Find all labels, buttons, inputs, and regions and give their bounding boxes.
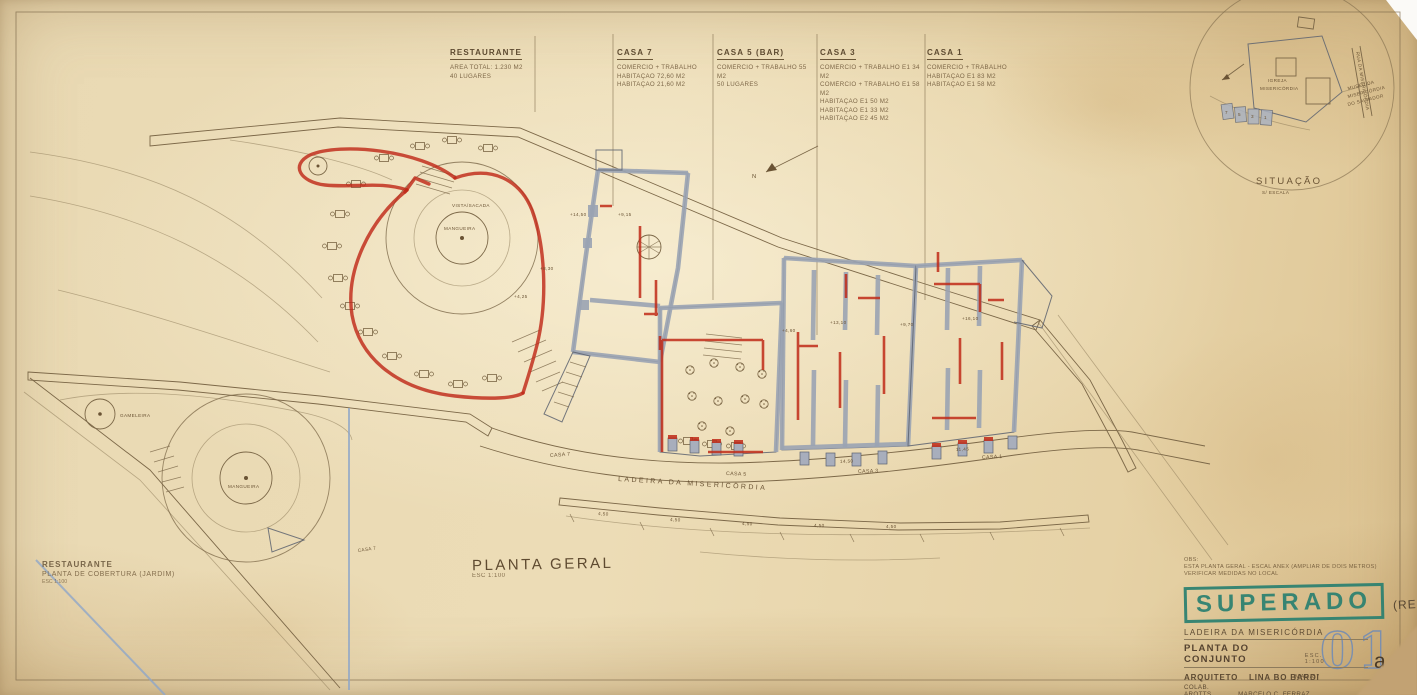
plan-small-labels: VISTA/SACADA MANGUEIRA LADEIRA DA MISERI… [444, 203, 1003, 529]
svg-text:MANGUEIRA: MANGUEIRA [444, 226, 476, 231]
street-lines [480, 315, 1228, 560]
svg-text:CASA 7: CASA 7 [550, 452, 571, 459]
casa-3 [782, 258, 916, 450]
svg-text:GAMELEIRA: GAMELEIRA [120, 413, 151, 418]
garden-plan: GAMELEIRA MANGUEIRA CASA 7 [24, 378, 376, 695]
svg-text:5: 5 [1238, 112, 1241, 117]
obs-note: OBS: ESTA PLANTA GERAL - ESCAL ANEX (AMP… [1184, 557, 1390, 578]
svg-text:IGREJA: IGREJA [1268, 78, 1288, 83]
annotation-casa-3: CASA 3 COMÉRCIO + TRABALHO E1 34 M2 COMÉ… [820, 42, 920, 124]
svg-text:1: 1 [1264, 115, 1267, 120]
annotation-casa-1: CASA 1 COMÉRCIO + TRABALHO HABITAÇÃO E1 … [927, 42, 1027, 90]
sheet-title-row: PLANTA DO CONJUNTO ESC. 1:100 [1184, 640, 1368, 668]
plan-title-block: PLANTA GERAL ESC 1:100 [472, 556, 613, 579]
terrain-contours [30, 140, 392, 372]
annotation-restaurante: RESTAURANTE AREA TOTAL: 1.230 M2 40 LUGA… [450, 42, 550, 81]
svg-text:+13,10: +13,10 [830, 320, 847, 325]
sheet-date: MAR/87 [1295, 674, 1320, 680]
svg-text:4,50: 4,50 [742, 521, 753, 526]
svg-text:+4,60: +4,60 [782, 328, 796, 333]
sheet-title: PLANTA DO CONJUNTO [1184, 643, 1305, 665]
svg-text:CASA 3: CASA 3 [858, 468, 879, 475]
svg-text:+8,30: +8,30 [540, 266, 554, 271]
casa-7 [544, 150, 688, 422]
restaurant-terrace [309, 137, 563, 392]
svg-text:+4,25: +4,25 [514, 294, 528, 299]
situacao-title: SITUAÇÃO [1256, 176, 1322, 187]
svg-text:VISTA/SACADA: VISTA/SACADA [452, 203, 490, 208]
svg-text:4,50: 4,50 [670, 517, 681, 523]
svg-text:CASA 1: CASA 1 [982, 454, 1003, 461]
svg-text:+9,70: +9,70 [900, 322, 914, 327]
svg-text:11,45: 11,45 [956, 447, 969, 452]
svg-text:S/ ESCALA: S/ ESCALA [1262, 190, 1290, 195]
annotation-casa-5: CASA 5 (BAR) COMÉRCIO + TRABALHO 55 M2 5… [717, 42, 817, 90]
red-markup-terrace [299, 149, 543, 398]
architect-row: ARQUITETO LINA BO BARDI MAR/87 [1184, 673, 1368, 682]
project-name: LADEIRA DA MISERICÓRDIA [1184, 626, 1368, 640]
svg-text:CASA 7: CASA 7 [357, 545, 376, 553]
sheet-scale: ESC. 1:100 [1305, 653, 1342, 665]
annotation-casa-7: CASA 7 COMÉRCIO + TRABALHO HABITAÇÃO 72,… [617, 42, 717, 90]
svg-text:+9,15: +9,15 [618, 212, 632, 217]
plan-scale: ESC 1:100 [472, 573, 613, 579]
svg-text:CASA 5: CASA 5 [726, 471, 747, 478]
svg-text:4,50: 4,50 [598, 511, 609, 517]
garden-title-block: RESTAURANTE PLANTA DE COBERTURA (JARDIM)… [42, 560, 175, 585]
scanned-drawing-sheet: N [0, 0, 1417, 695]
folded-corner [1353, 623, 1417, 695]
stone-retaining-walls [28, 118, 1136, 530]
svg-text:7: 7 [1225, 110, 1228, 115]
plan-title: PLANTA GERAL [472, 555, 614, 574]
superado-stamp: SUPERADO [1184, 583, 1385, 623]
casa-5 [660, 303, 782, 456]
svg-text:MANGUEIRA: MANGUEIRA [228, 484, 260, 489]
svg-text:3: 3 [1251, 114, 1254, 119]
situacao-inset: 7 5 3 1 IGREJA MISERICÓRDIA MUSEU DA MIS… [1190, 0, 1394, 195]
svg-text:14,50: 14,50 [840, 459, 854, 464]
svg-text:4,50: 4,50 [886, 524, 897, 529]
svg-text:+16,10: +16,10 [962, 316, 979, 321]
collaborators-row: COLAB. ARQTTS MARCELO C. FERRAZ MARCELO … [1184, 684, 1334, 695]
courtyard-trees [686, 359, 768, 435]
svg-text:+14,50: +14,50 [570, 212, 587, 217]
svg-text:4,50: 4,50 [814, 523, 825, 528]
north-label: N [752, 174, 757, 180]
svg-text:MISERICÓRDIA: MISERICÓRDIA [1260, 85, 1299, 91]
north-arrow: N [752, 146, 818, 180]
